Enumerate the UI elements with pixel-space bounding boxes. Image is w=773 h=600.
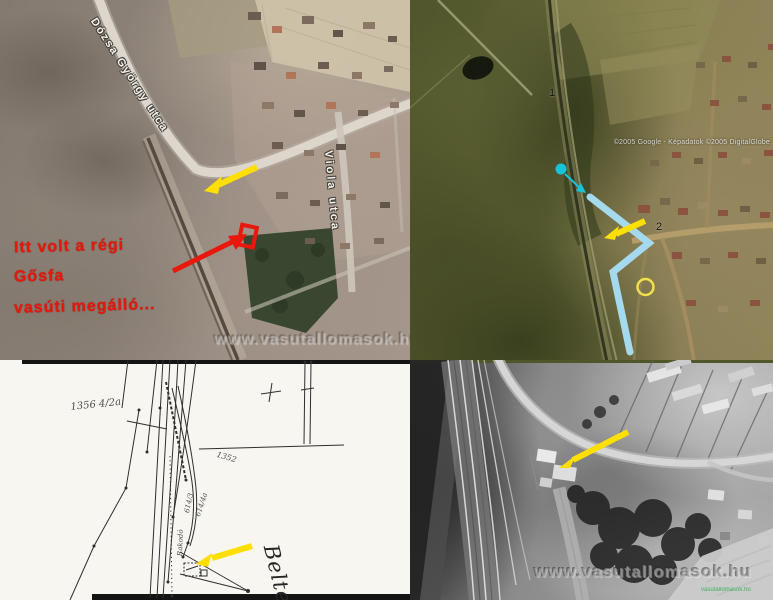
teal-dot-marker: [556, 164, 567, 175]
quadrant-cadastral-map: 1356 4/2a 1352 614/3 614/4a Rakodó Belte…: [0, 360, 410, 600]
small-watermark: vasutallomasok.hu: [701, 587, 751, 593]
small-trees: [582, 395, 619, 429]
watermark-bottom-right: www.vasutallomasok.hu: [534, 562, 752, 582]
caption-line-1: Itt volt a régi: [14, 237, 125, 258]
yellow-arrow: [196, 546, 252, 567]
scan-edge-top: [22, 360, 410, 364]
station-buildings: [530, 449, 577, 490]
quadrant-color-aerial: Dózsa György utca Viola utca Itt volt a …: [0, 0, 410, 360]
track-label-rakodo: Rakodó: [176, 529, 185, 556]
photo-collage: Dózsa György utca Viola utca Itt volt a …: [0, 0, 773, 600]
satellite-graphics: [410, 0, 773, 360]
caption-line-2: Gősfa: [14, 267, 65, 286]
map-graphics: [0, 360, 410, 600]
quadrant-google-satellite: 1 2 ©2005 Google - Képadatok ©2005 Digit…: [410, 0, 773, 360]
number-marker-2: 2: [656, 221, 662, 233]
google-copyright: ©2005 Google - Képadatok ©2005 DigitalGl…: [614, 139, 770, 146]
caption-line-3: vasúti megálló...: [14, 296, 156, 318]
field-boundaries: [410, 0, 532, 108]
watermark-top-left: www.vasutallomasok.hu: [214, 331, 410, 349]
scan-edge-bottom: [92, 594, 410, 600]
number-marker-1: 1: [549, 87, 555, 99]
pond: [459, 52, 497, 84]
quadrant-bw-aerial: www.vasutallomasok.hu vasutallomasok.hu: [410, 360, 773, 600]
